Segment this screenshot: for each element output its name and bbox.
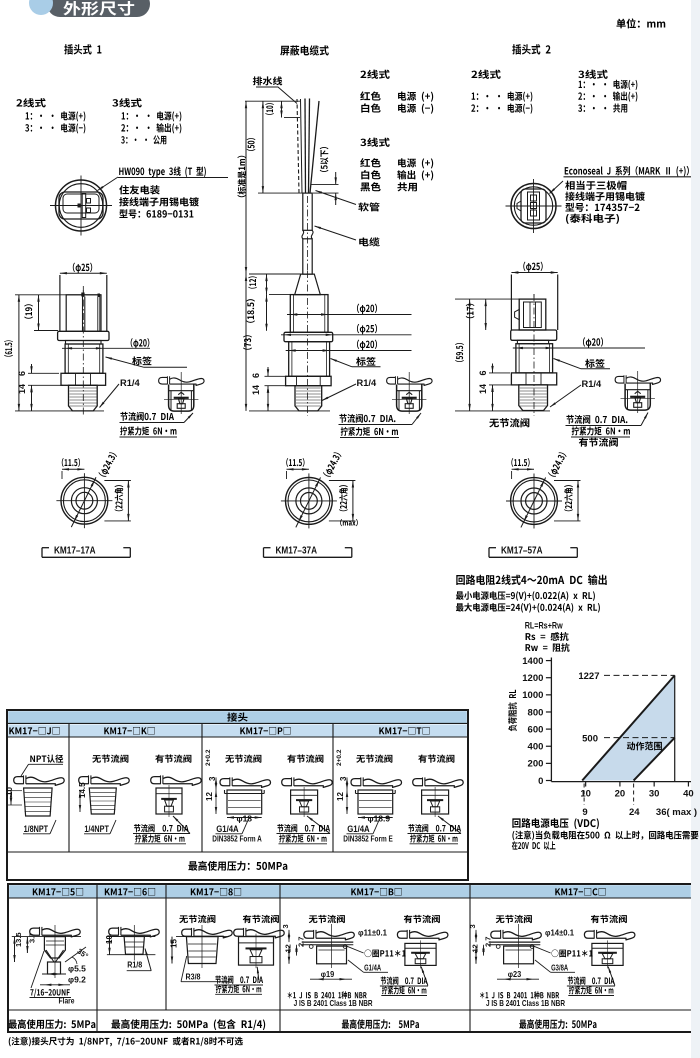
svg-text:KM17–57A: KM17–57A <box>501 545 543 557</box>
svg-text:1000: 1000 <box>522 690 543 701</box>
svg-text:12: 12 <box>284 944 293 952</box>
svg-text:3: 3 <box>468 924 477 928</box>
svg-text:2+0.2: 2+0.2 <box>336 749 343 766</box>
svg-text:DIN3852 Form A: DIN3852 Form A <box>212 835 262 844</box>
svg-text:600: 600 <box>528 724 544 735</box>
svg-text:14.5: 14.5 <box>78 782 87 798</box>
svg-text:R3/8: R3/8 <box>186 972 201 982</box>
svg-text:0: 0 <box>538 776 543 787</box>
svg-text:36( max ): 36( max ) <box>656 807 697 818</box>
svg-text:2+0.2: 2+0.2 <box>205 749 212 766</box>
svg-text:12: 12 <box>205 792 214 801</box>
svg-text:6: 6 <box>478 370 488 375</box>
svg-text:φ18: φ18 <box>237 814 253 824</box>
svg-text:500: 500 <box>582 734 598 745</box>
svg-text:3: 3 <box>281 924 290 928</box>
svg-text:φ11±0.1: φ11±0.1 <box>358 928 387 938</box>
svg-text:3: 3 <box>208 776 217 781</box>
svg-text:800: 800 <box>528 707 544 718</box>
svg-text:40: 40 <box>683 789 694 800</box>
svg-text:J IS B 2401 Class 1B NBR: J IS B 2401 Class 1B NBR <box>294 998 373 1008</box>
svg-text:G3/8A: G3/8A <box>551 963 568 973</box>
svg-text:R1/4: R1/4 <box>120 378 140 388</box>
svg-text:14: 14 <box>17 384 27 394</box>
svg-text:G1/4A: G1/4A <box>364 963 381 973</box>
svg-text:10: 10 <box>580 789 591 800</box>
svg-text:24: 24 <box>629 807 640 818</box>
svg-text:10: 10 <box>105 935 114 944</box>
svg-text:15: 15 <box>170 939 179 948</box>
svg-text:φ19: φ19 <box>321 969 335 979</box>
svg-text:R1/4: R1/4 <box>357 378 377 388</box>
svg-text:G1/4A: G1/4A <box>216 824 239 834</box>
svg-text:φ18.9: φ18.9 <box>368 814 391 824</box>
svg-text:φ14±0.1: φ14±0.1 <box>545 928 574 938</box>
svg-text:400: 400 <box>528 742 544 753</box>
svg-text:14: 14 <box>478 384 488 394</box>
svg-text:KM17–17A: KM17–17A <box>54 545 96 557</box>
svg-text:200: 200 <box>528 759 544 770</box>
svg-text:30: 30 <box>649 789 660 800</box>
svg-text:R1/8: R1/8 <box>127 960 142 970</box>
svg-text:6: 6 <box>17 371 27 376</box>
svg-text:2.7: 2.7 <box>297 937 306 947</box>
svg-text:1/4NPT: 1/4NPT <box>84 824 109 834</box>
svg-text:R1/4: R1/4 <box>582 379 602 389</box>
svg-text:12: 12 <box>471 944 480 952</box>
svg-text:3.7: 3.7 <box>28 933 37 943</box>
svg-text:9: 9 <box>582 807 587 818</box>
svg-text:1227: 1227 <box>578 671 599 682</box>
svg-text:J IS B 2401 Class 1B NBR: J IS B 2401 Class 1B NBR <box>486 998 565 1008</box>
svg-text:φ5.5: φ5.5 <box>68 964 86 974</box>
svg-text:φ9.2: φ9.2 <box>68 975 86 985</box>
svg-text:3: 3 <box>339 776 348 781</box>
svg-text:1200: 1200 <box>522 673 543 684</box>
svg-text:KM17–37A: KM17–37A <box>276 545 318 557</box>
svg-text:φ23: φ23 <box>508 969 522 979</box>
svg-text:20: 20 <box>615 789 626 800</box>
svg-text:14: 14 <box>251 385 261 395</box>
svg-text:RL=Rs+Rw: RL=Rs+Rw <box>525 621 563 632</box>
svg-text:1/8NPT: 1/8NPT <box>24 824 49 834</box>
svg-text:Flare: Flare <box>59 996 75 1006</box>
svg-text:13.5: 13.5 <box>14 932 23 947</box>
svg-text:G1/4A: G1/4A <box>347 824 370 834</box>
svg-text:10: 10 <box>5 787 14 796</box>
svg-text:1400: 1400 <box>522 656 543 667</box>
svg-text:12: 12 <box>336 792 345 801</box>
svg-text:DIN3852 Form E: DIN3852 Form E <box>343 835 393 844</box>
svg-text:2.7: 2.7 <box>484 937 493 947</box>
svg-text:6: 6 <box>251 373 261 378</box>
